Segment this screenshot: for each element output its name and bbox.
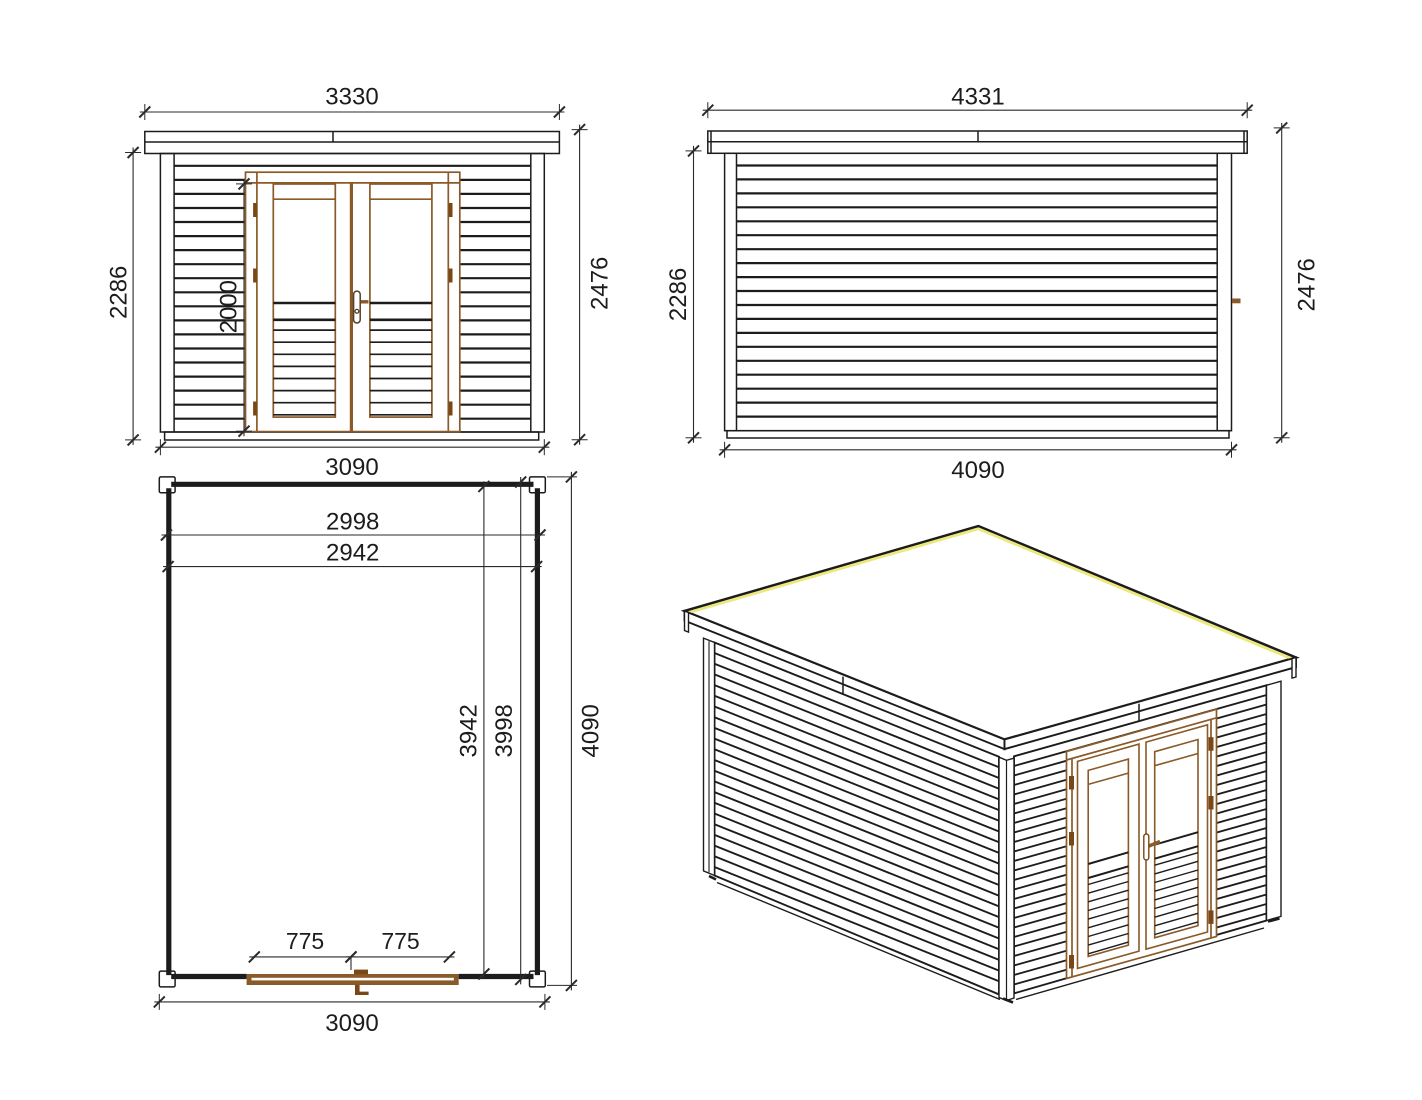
svg-text:3998: 3998 xyxy=(491,704,518,757)
svg-text:3090: 3090 xyxy=(325,454,378,481)
svg-text:3330: 3330 xyxy=(325,84,378,111)
svg-text:2942: 2942 xyxy=(326,540,379,567)
svg-text:775: 775 xyxy=(381,928,419,954)
svg-text:4331: 4331 xyxy=(951,84,1004,111)
svg-text:2000: 2000 xyxy=(216,280,243,333)
svg-text:2286: 2286 xyxy=(106,266,133,319)
svg-text:3090: 3090 xyxy=(325,1010,378,1037)
svg-text:775: 775 xyxy=(286,928,324,954)
svg-text:4090: 4090 xyxy=(578,704,605,757)
svg-text:2286: 2286 xyxy=(665,268,692,321)
svg-text:4090: 4090 xyxy=(951,457,1004,484)
svg-text:2476: 2476 xyxy=(1294,258,1321,311)
svg-text:2476: 2476 xyxy=(587,257,614,310)
svg-text:3942: 3942 xyxy=(456,704,483,757)
svg-text:2998: 2998 xyxy=(326,509,379,536)
